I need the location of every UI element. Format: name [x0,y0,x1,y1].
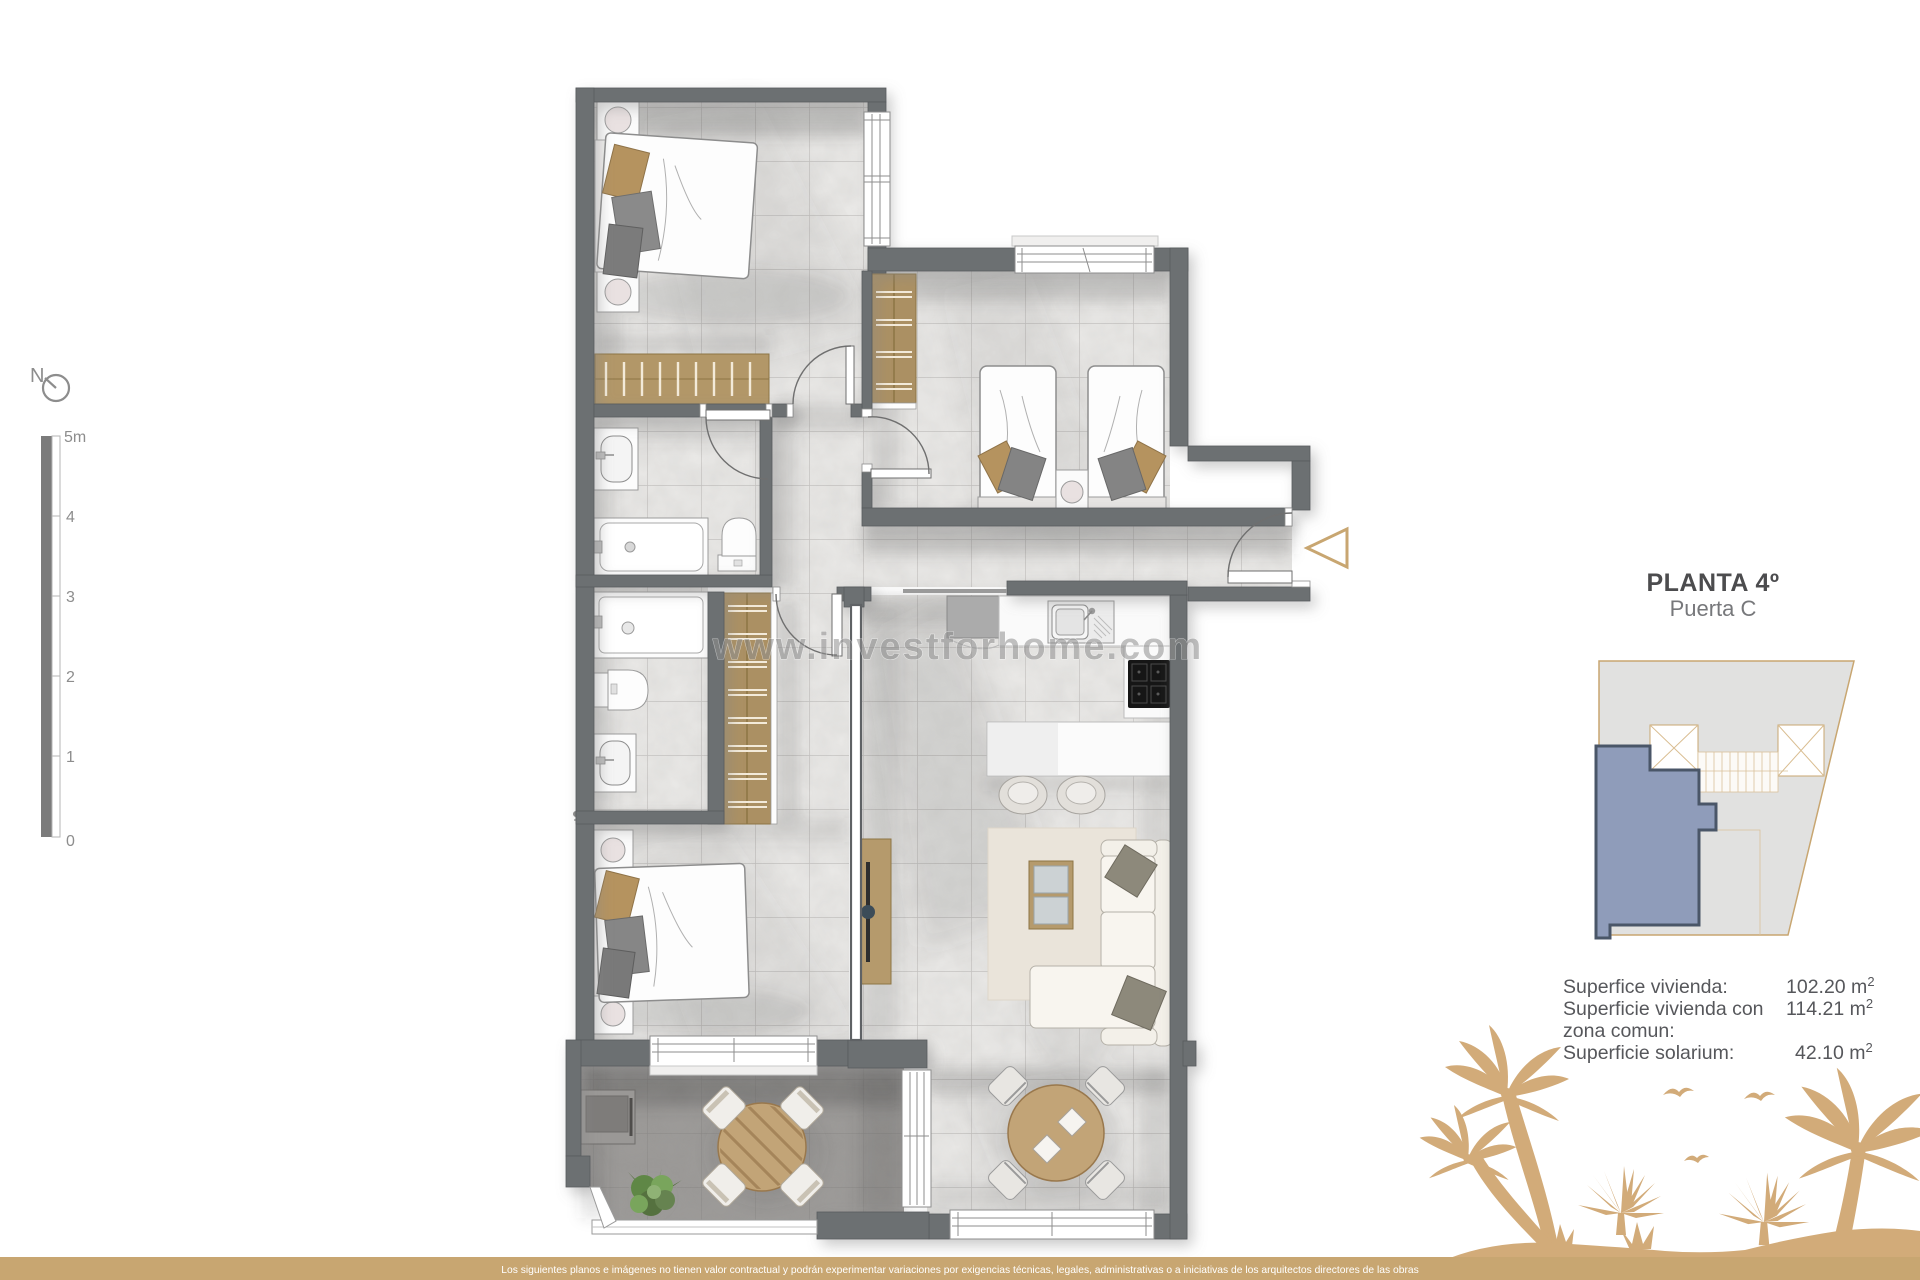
svg-text:Puerta C: Puerta C [1670,596,1757,621]
svg-text:Superfice vivienda:: Superfice vivienda: [1563,976,1728,998]
svg-text:www.investforhome.com: www.investforhome.com [712,626,1203,668]
svg-text:Los siguientes planos e imágen: Los siguientes planos e imágenes no tien… [501,1265,1419,1276]
svg-text:4: 4 [66,509,75,526]
svg-text:42.10 m2: 42.10 m2 [1795,1040,1873,1064]
svg-text:3: 3 [66,589,75,606]
svg-text:PLANTA 4º: PLANTA 4º [1646,569,1779,597]
svg-text:1: 1 [66,749,75,766]
svg-text:zona comun:: zona comun: [1563,1020,1675,1042]
svg-text:114.21 m2: 114.21 m2 [1786,996,1873,1020]
svg-text:2: 2 [66,669,75,686]
svg-text:102.20 m2: 102.20 m2 [1786,974,1875,998]
svg-text:Superficie vivienda con: Superficie vivienda con [1563,998,1764,1020]
svg-text:N: N [30,365,44,387]
svg-text:0: 0 [66,833,75,850]
svg-text:5m: 5m [64,429,86,446]
svg-text:Superficie solarium:: Superficie solarium: [1563,1042,1734,1064]
